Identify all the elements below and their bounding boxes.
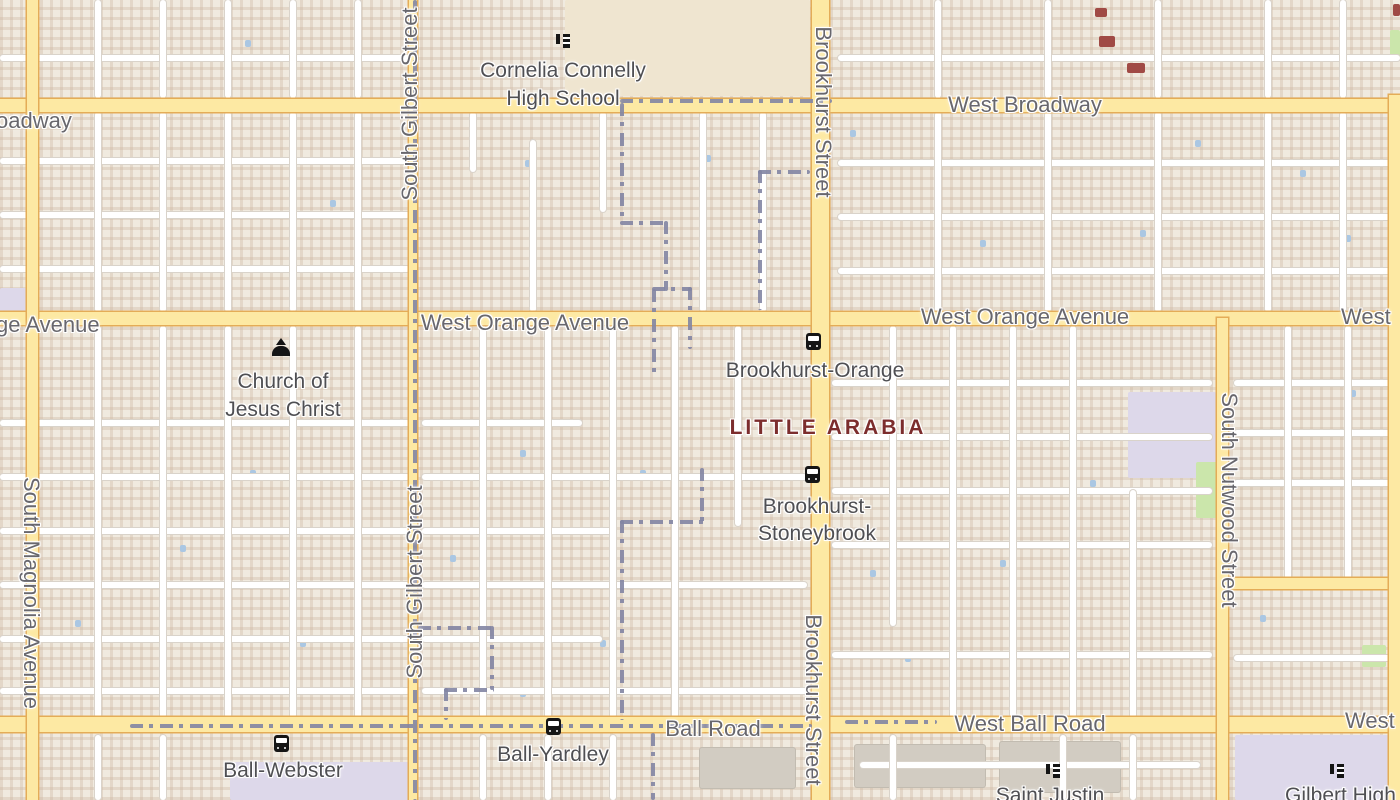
school-icon-saint-justin[interactable] <box>1046 764 1060 778</box>
school-icon-gilbert-high[interactable] <box>1330 764 1344 778</box>
bus-icon-brookhurst-stoneybrook[interactable] <box>805 466 820 483</box>
church-icon-jesus-christ[interactable] <box>272 346 290 356</box>
map-canvas[interactable]: West Broadway oadway West Orange Avenue … <box>0 0 1400 800</box>
bus-icon-ball-webster[interactable] <box>274 735 289 752</box>
bus-icon-ball-yardley[interactable] <box>546 718 561 735</box>
school-icon-cornelia-connelly[interactable] <box>556 34 570 48</box>
bus-icon-brookhurst-orange[interactable] <box>806 333 821 350</box>
icons-layer <box>0 0 1400 800</box>
